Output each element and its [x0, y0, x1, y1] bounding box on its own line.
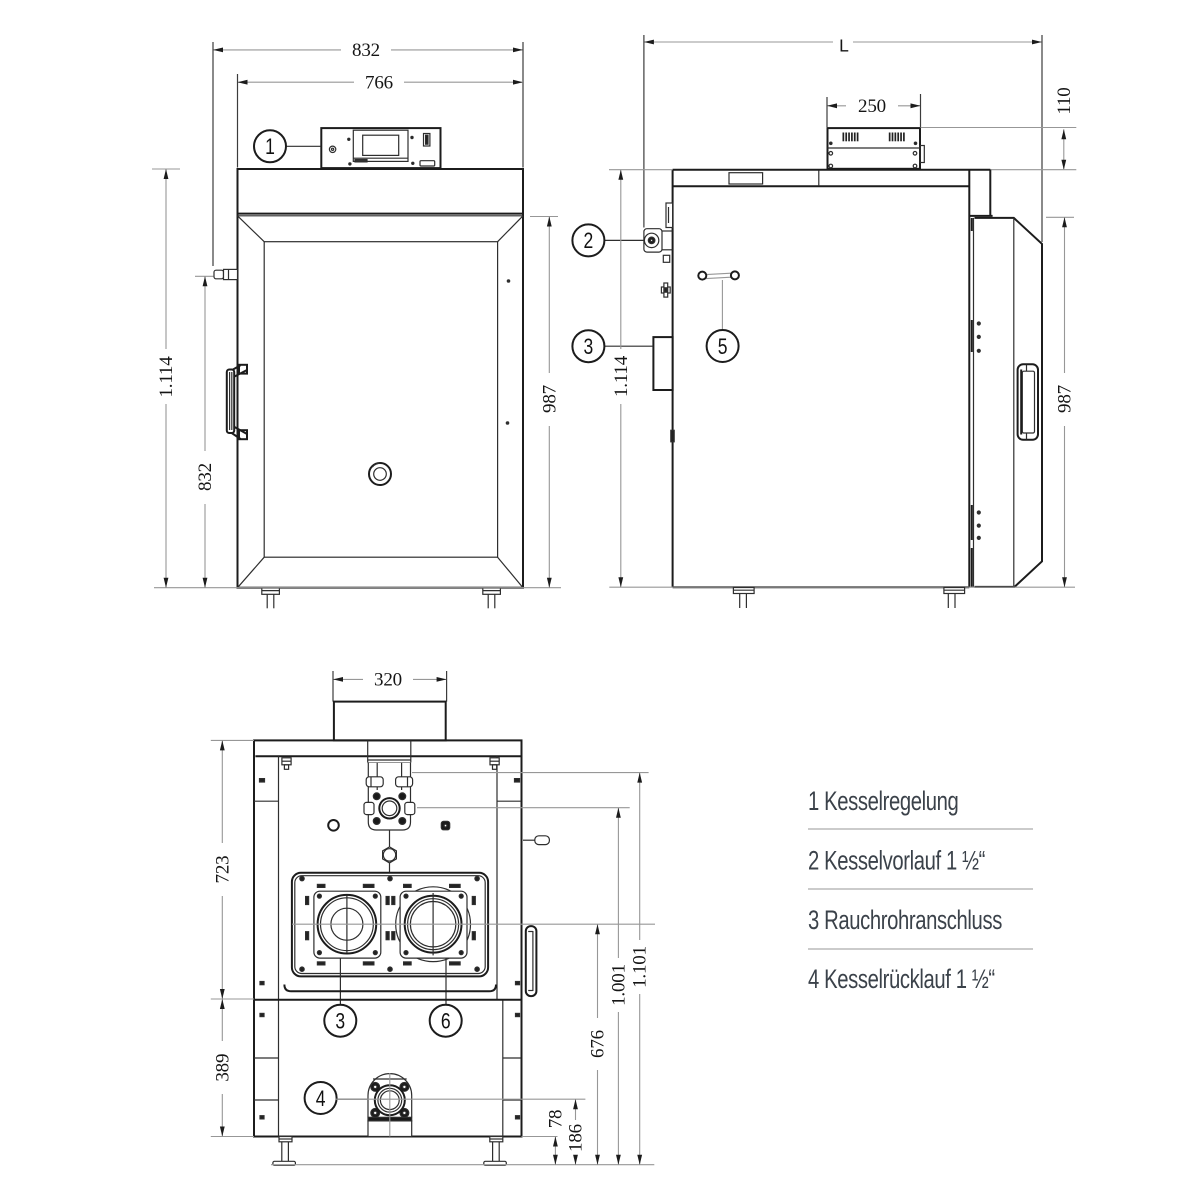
svg-text:987: 987	[1055, 385, 1076, 413]
svg-text:2: 2	[584, 229, 594, 254]
svg-text:766: 766	[365, 72, 393, 93]
svg-text:4 Kesselrücklauf 1 ½“: 4 Kesselrücklauf 1 ½“	[808, 964, 995, 995]
svg-text:3 Rauchrohranschluss: 3 Rauchrohranschluss	[808, 905, 1002, 936]
svg-text:186: 186	[566, 1124, 587, 1152]
svg-text:723: 723	[212, 856, 233, 884]
svg-text:1.114: 1.114	[156, 356, 177, 398]
svg-text:110: 110	[1054, 87, 1075, 114]
svg-text:250: 250	[858, 96, 886, 117]
svg-text:3: 3	[335, 1010, 345, 1035]
svg-text:320: 320	[374, 670, 402, 691]
svg-text:832: 832	[352, 40, 380, 61]
svg-text:2 Kesselvorlauf 1 ½“: 2 Kesselvorlauf 1 ½“	[808, 846, 985, 877]
svg-text:4: 4	[316, 1087, 326, 1112]
svg-text:832: 832	[195, 463, 216, 491]
svg-text:1: 1	[265, 135, 275, 160]
svg-text:78: 78	[545, 1110, 566, 1129]
svg-text:676: 676	[588, 1030, 609, 1058]
svg-text:1 Kesselregelung: 1 Kesselregelung	[808, 786, 958, 817]
svg-text:987: 987	[539, 385, 560, 413]
svg-text:5: 5	[718, 335, 728, 360]
svg-text:6: 6	[441, 1010, 451, 1035]
svg-text:1.001: 1.001	[608, 964, 629, 1006]
svg-text:389: 389	[212, 1054, 233, 1082]
svg-text:3: 3	[584, 335, 594, 360]
svg-text:L: L	[839, 35, 849, 55]
svg-text:1.101: 1.101	[630, 946, 651, 988]
svg-text:1.114: 1.114	[611, 355, 632, 397]
